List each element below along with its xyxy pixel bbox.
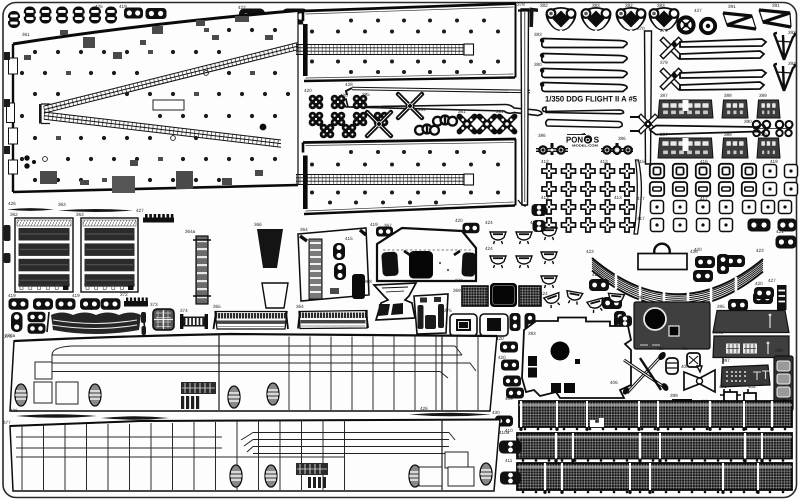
svg-text:423: 423 bbox=[756, 248, 764, 253]
svg-text:406: 406 bbox=[610, 380, 618, 385]
svg-text:361: 361 bbox=[496, 109, 504, 114]
svg-text:362: 362 bbox=[10, 212, 18, 217]
svg-text:372: 372 bbox=[120, 292, 128, 297]
svg-text:363: 363 bbox=[76, 212, 84, 217]
svg-text:419: 419 bbox=[119, 4, 127, 9]
svg-text:424: 424 bbox=[485, 220, 493, 225]
svg-text:401: 401 bbox=[719, 384, 727, 389]
svg-text:407: 407 bbox=[681, 346, 689, 351]
svg-text:425: 425 bbox=[95, 4, 103, 9]
svg-text:383: 383 bbox=[592, 3, 600, 8]
svg-text:364: 364 bbox=[300, 227, 308, 232]
svg-text:364: 364 bbox=[296, 304, 304, 309]
svg-text:383: 383 bbox=[657, 3, 665, 8]
svg-text:427: 427 bbox=[768, 278, 776, 283]
svg-text:413: 413 bbox=[541, 195, 549, 200]
svg-text:378: 378 bbox=[517, 2, 525, 7]
svg-text:413: 413 bbox=[600, 159, 608, 164]
svg-text:413: 413 bbox=[541, 159, 549, 164]
svg-text:388: 388 bbox=[724, 93, 732, 98]
svg-text:423: 423 bbox=[586, 249, 594, 254]
svg-text:419: 419 bbox=[770, 159, 778, 164]
svg-text:364a: 364a bbox=[185, 229, 196, 234]
svg-text:437: 437 bbox=[694, 8, 702, 13]
svg-text:382: 382 bbox=[625, 3, 633, 8]
svg-text:424: 424 bbox=[540, 291, 548, 296]
svg-text:373: 373 bbox=[150, 302, 158, 307]
svg-text:386: 386 bbox=[538, 133, 546, 138]
svg-text:422: 422 bbox=[238, 5, 246, 10]
svg-text:389: 389 bbox=[759, 93, 767, 98]
svg-text:429: 429 bbox=[592, 272, 600, 277]
svg-text:380: 380 bbox=[534, 62, 542, 67]
svg-text:420: 420 bbox=[304, 88, 312, 93]
svg-text:430: 430 bbox=[492, 410, 500, 415]
svg-text:417: 417 bbox=[637, 216, 645, 221]
svg-text:419: 419 bbox=[8, 293, 16, 298]
svg-text:369: 369 bbox=[453, 288, 461, 293]
svg-text:366: 366 bbox=[254, 222, 262, 227]
svg-text:394: 394 bbox=[637, 295, 645, 300]
svg-text:415: 415 bbox=[637, 159, 645, 164]
svg-text:379: 379 bbox=[660, 28, 668, 33]
svg-text:411: 411 bbox=[505, 458, 513, 463]
svg-text:420: 420 bbox=[498, 355, 506, 360]
svg-text:426: 426 bbox=[8, 201, 16, 206]
svg-text:410a: 410a bbox=[499, 430, 510, 435]
svg-text:394a: 394a bbox=[713, 330, 724, 335]
svg-text:419: 419 bbox=[72, 293, 80, 298]
svg-text:361: 361 bbox=[22, 32, 30, 37]
svg-text:391: 391 bbox=[728, 4, 736, 9]
svg-text:376a: 376a bbox=[5, 333, 16, 338]
svg-text:386: 386 bbox=[618, 136, 626, 141]
svg-text:408: 408 bbox=[681, 364, 689, 369]
svg-text:383: 383 bbox=[534, 32, 542, 37]
svg-text:392: 392 bbox=[788, 30, 796, 35]
svg-text:377: 377 bbox=[3, 420, 11, 425]
svg-text:393: 393 bbox=[528, 331, 536, 336]
svg-text:379: 379 bbox=[660, 60, 668, 65]
svg-text:421: 421 bbox=[776, 229, 784, 234]
svg-text:374: 374 bbox=[180, 308, 188, 313]
svg-text:417: 417 bbox=[700, 196, 708, 201]
svg-text:365: 365 bbox=[213, 304, 221, 309]
svg-text:426: 426 bbox=[10, 408, 18, 413]
svg-text:391: 391 bbox=[772, 3, 780, 8]
svg-text:424: 424 bbox=[485, 246, 493, 251]
svg-text:371: 371 bbox=[85, 306, 93, 311]
svg-text:370: 370 bbox=[455, 278, 463, 283]
svg-text:399: 399 bbox=[670, 393, 678, 398]
svg-text:420: 420 bbox=[340, 93, 348, 98]
svg-text:388: 388 bbox=[724, 132, 732, 137]
svg-text:420: 420 bbox=[455, 218, 463, 223]
svg-text:390: 390 bbox=[744, 119, 752, 124]
svg-text:367: 367 bbox=[384, 223, 392, 228]
svg-text:415: 415 bbox=[345, 236, 353, 241]
svg-text:382: 382 bbox=[540, 3, 548, 8]
svg-text:402: 402 bbox=[748, 384, 756, 389]
svg-text:400: 400 bbox=[656, 346, 664, 351]
svg-text:363: 363 bbox=[58, 202, 66, 207]
svg-text:395: 395 bbox=[717, 304, 725, 309]
svg-text:392: 392 bbox=[788, 61, 796, 66]
svg-text:417: 417 bbox=[637, 196, 645, 201]
svg-text:427: 427 bbox=[136, 208, 144, 213]
svg-text:426: 426 bbox=[420, 406, 428, 411]
svg-text:385: 385 bbox=[362, 92, 370, 97]
svg-text:361: 361 bbox=[458, 109, 466, 114]
svg-text:1/350 DDG FLIGHT II A #5: 1/350 DDG FLIGHT II A #5 bbox=[545, 95, 638, 104]
svg-text:387: 387 bbox=[660, 93, 668, 98]
svg-text:MODEL.COM: MODEL.COM bbox=[572, 144, 599, 148]
svg-text:387: 387 bbox=[660, 132, 668, 137]
svg-text:416: 416 bbox=[700, 159, 708, 164]
svg-text:420: 420 bbox=[694, 247, 702, 252]
svg-text:419: 419 bbox=[370, 222, 378, 227]
svg-text:428: 428 bbox=[345, 82, 353, 87]
svg-text:364: 364 bbox=[418, 107, 426, 112]
svg-text:420: 420 bbox=[755, 281, 763, 286]
svg-text:397: 397 bbox=[722, 358, 730, 363]
svg-text:398: 398 bbox=[775, 348, 783, 353]
svg-text:413: 413 bbox=[614, 195, 622, 200]
svg-text:368: 368 bbox=[364, 279, 372, 284]
svg-text:409: 409 bbox=[505, 396, 513, 401]
svg-text:375: 375 bbox=[444, 308, 452, 313]
